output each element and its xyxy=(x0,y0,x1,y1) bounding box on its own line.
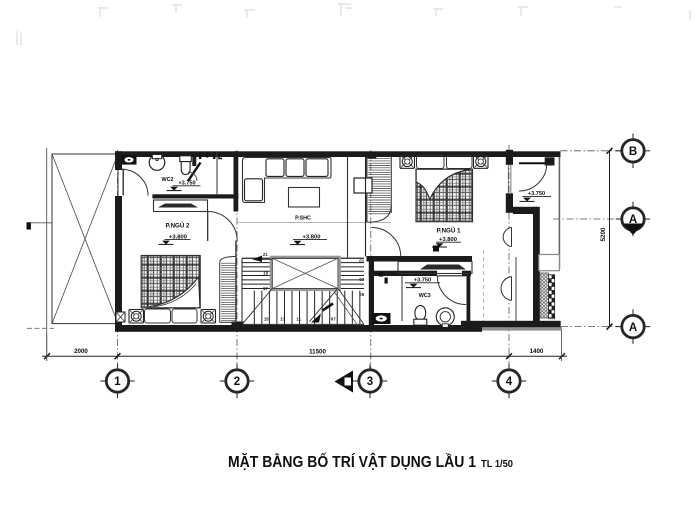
svg-text:07: 07 xyxy=(331,317,336,322)
svg-text:19: 19 xyxy=(263,270,268,275)
svg-text:3: 3 xyxy=(367,376,373,388)
svg-text:4: 4 xyxy=(506,376,513,388)
svg-text:05: 05 xyxy=(359,292,364,297)
svg-text:2000: 2000 xyxy=(74,348,88,355)
svg-text:TL 1/50: TL 1/50 xyxy=(481,458,513,470)
svg-text:11500: 11500 xyxy=(309,349,326,356)
svg-text:MẶT BẰNG BỐ TRÍ VẬT DỤNG LẦU 1: MẶT BẰNG BỐ TRÍ VẬT DỤNG LẦU 1 xyxy=(228,451,476,471)
svg-text:5200: 5200 xyxy=(600,227,607,241)
svg-text:15: 15 xyxy=(264,317,269,322)
svg-text:03: 03 xyxy=(359,277,364,282)
svg-text:WC2: WC2 xyxy=(162,177,174,183)
svg-text:WC3: WC3 xyxy=(419,293,431,299)
svg-text:B: B xyxy=(629,146,637,158)
svg-text:01: 01 xyxy=(359,259,364,264)
svg-text:1400: 1400 xyxy=(530,348,544,355)
svg-text:P.SHC: P.SHC xyxy=(295,216,311,222)
svg-text:A: A xyxy=(629,322,637,334)
svg-text:2: 2 xyxy=(234,376,240,388)
svg-text:21: 21 xyxy=(263,252,268,257)
svg-text:P.NGỦ 1: P.NGỦ 1 xyxy=(437,228,462,235)
svg-text:P.NGỦ 2: P.NGỦ 2 xyxy=(166,222,191,229)
svg-text:1: 1 xyxy=(114,376,121,388)
svg-text:11: 11 xyxy=(296,317,301,322)
svg-text:17: 17 xyxy=(263,286,268,291)
svg-text:13: 13 xyxy=(280,317,285,322)
svg-text:+3.750: +3.750 xyxy=(528,191,545,197)
